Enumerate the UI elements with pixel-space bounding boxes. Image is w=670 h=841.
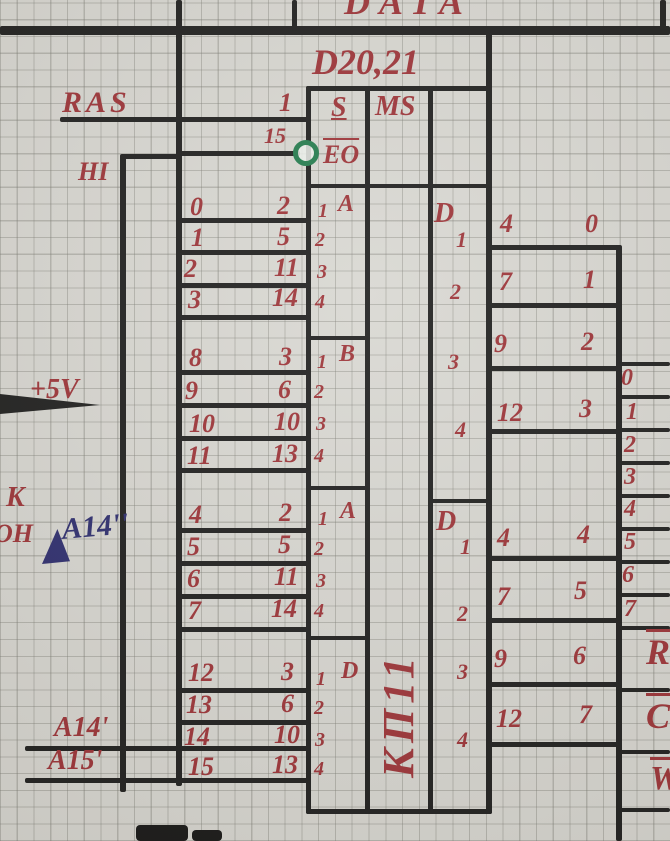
hi-jog-wire [121, 154, 181, 159]
bus-line-label: 2 [624, 433, 636, 457]
ras-label: RAS [62, 88, 131, 118]
enable-pin-name: EO [323, 142, 359, 168]
cutoff-mark [136, 825, 188, 841]
line-label: 9 [185, 378, 198, 404]
ras-bus-label: R [646, 634, 670, 670]
group-letter: D [341, 659, 358, 683]
wire [488, 742, 621, 747]
pin-number: 6 [278, 377, 291, 403]
input-index: 1 [317, 352, 327, 372]
line-label: 11 [187, 443, 212, 469]
output-section-divider [428, 499, 491, 503]
pin-number: 4 [497, 525, 510, 551]
cutoff-mark [192, 830, 222, 841]
bus-line-label: 0 [621, 366, 633, 390]
group-letter: A [338, 192, 354, 216]
we-bus-label: W [650, 762, 670, 796]
a15-wire [25, 778, 310, 783]
pin-number: 7 [499, 269, 512, 295]
chip-outline-left [306, 86, 311, 814]
line-label: 15 [188, 754, 214, 780]
a14-label: A14' [54, 714, 108, 742]
input-index: 4 [314, 601, 324, 621]
group-divider [306, 486, 368, 490]
wire [488, 303, 621, 308]
wire [178, 627, 310, 632]
bus-cell-line [619, 688, 670, 692]
pin-number: 13 [272, 441, 298, 467]
input-index: 1 [318, 201, 328, 221]
line-label: 13 [186, 692, 212, 718]
output-section-letter: D [436, 508, 456, 536]
junction-ring [293, 140, 319, 166]
wire [488, 429, 621, 434]
select-pin-number: 1 [279, 90, 292, 116]
bus-cell-line [619, 750, 670, 754]
input-index: 3 [317, 262, 327, 282]
line-label: 2 [184, 256, 197, 282]
enable-pin-number: 15 [264, 125, 286, 147]
input-index: 3 [315, 730, 325, 750]
pin-number: 2 [277, 193, 290, 219]
line-label: 5 [187, 534, 200, 560]
output-index: 1 [456, 229, 467, 251]
line-label: 12 [188, 660, 214, 686]
pin-number: 12 [497, 400, 523, 426]
wire [488, 618, 621, 623]
pin-number: 2 [279, 500, 292, 526]
enable-wire [180, 151, 300, 156]
top-right-drop-wire [660, 0, 666, 31]
input-index: 2 [314, 382, 324, 402]
line-label: 7 [579, 702, 592, 728]
line-label: 14 [184, 724, 210, 750]
power-label: +5V [30, 376, 79, 404]
pin-number: 11 [274, 255, 299, 281]
pin-number: 5 [278, 532, 291, 558]
group-letter: A [340, 499, 356, 523]
pin-number: 14 [272, 285, 298, 311]
k-label: K [6, 484, 25, 512]
a14-note-label: A14'' [61, 509, 130, 545]
wire [488, 366, 621, 371]
chip-separator-1 [365, 86, 370, 814]
group-letter: B [339, 342, 355, 366]
group-divider [306, 636, 368, 640]
output-index: 2 [457, 603, 468, 625]
input-index: 1 [316, 669, 326, 689]
bus-line-label: 6 [622, 563, 634, 587]
line-label: 6 [573, 643, 586, 669]
line-label: 5 [574, 578, 587, 604]
select-pin-name: S [331, 94, 347, 122]
input-index: 4 [314, 446, 324, 466]
bus-line-label: 5 [624, 530, 636, 554]
line-label: 3 [579, 396, 592, 422]
line-label: 1 [191, 225, 204, 251]
line-label: 2 [581, 329, 594, 355]
line-label: 4 [189, 502, 202, 528]
bus-line-label: 3 [624, 465, 636, 489]
pin-number: 3 [281, 659, 294, 685]
line-label: 1 [583, 267, 596, 293]
line-label: 4 [577, 522, 590, 548]
top-bus-line [0, 26, 670, 35]
output-index: 4 [455, 419, 466, 441]
wire [488, 556, 621, 561]
data-drop-wire [292, 0, 297, 31]
input-index: 3 [316, 414, 326, 434]
pin-number: 12 [496, 706, 522, 732]
on-label: ОН [0, 521, 33, 547]
pin-number: 5 [277, 224, 290, 250]
output-section-letter: D [434, 200, 454, 228]
wire [488, 245, 621, 250]
input-index: 2 [314, 698, 324, 718]
input-index: 4 [314, 759, 324, 779]
line-label: 10 [189, 411, 215, 437]
output-index: 1 [460, 536, 471, 558]
pin-number: 14 [271, 596, 297, 622]
chip-ref-label: D20,21 [312, 44, 419, 80]
bus-line-label: 4 [624, 497, 636, 521]
schematic-page: DATA D20,21 RAS HI 1 15 S EO MS КП11 A 0… [0, 0, 670, 841]
cas-bus-label: C [646, 698, 670, 734]
output-index: 3 [457, 661, 468, 683]
line-label: 6 [187, 566, 200, 592]
input-index: 1 [318, 509, 328, 529]
chip-outline-right [486, 30, 492, 814]
pin-number: 4 [500, 211, 513, 237]
line-label: 8 [189, 345, 202, 371]
vertical-rail-b [120, 154, 126, 792]
pin-number: 3 [279, 344, 292, 370]
output-index: 3 [448, 351, 459, 373]
chip-part-number: КП11 [377, 615, 423, 815]
input-index: 4 [315, 292, 325, 312]
pin-number: 6 [281, 691, 294, 717]
bus-line-label: 7 [624, 597, 636, 621]
pin-number: 11 [274, 564, 299, 590]
chip-header-divider [306, 184, 492, 188]
a15-label: A15' [48, 747, 102, 775]
output-index: 4 [457, 729, 468, 751]
input-index: 2 [315, 230, 325, 250]
line-label: 7 [188, 598, 201, 624]
output-index: 2 [450, 281, 461, 303]
pin-number: 9 [494, 646, 507, 672]
wire [178, 315, 310, 320]
bus-line-label: 1 [626, 400, 638, 424]
pin-number: 10 [274, 722, 300, 748]
line-label: 0 [190, 194, 203, 220]
pin-number: 7 [497, 584, 510, 610]
top-bus-label: DATA [344, 0, 472, 20]
bus-cell-line [619, 626, 670, 630]
pin-number: 9 [494, 331, 507, 357]
line-label: 0 [585, 211, 598, 237]
input-index: 3 [316, 571, 326, 591]
bus-cell-line [619, 808, 670, 812]
group-divider [306, 336, 368, 340]
chip-separator-2 [428, 86, 433, 814]
wire [488, 682, 621, 687]
line-label: 3 [188, 287, 201, 313]
input-index: 2 [314, 539, 324, 559]
chip-func-label: MS [375, 93, 415, 121]
hi-label: HI [78, 159, 108, 185]
pin-number: 10 [274, 409, 300, 435]
pin-number: 13 [272, 752, 298, 778]
